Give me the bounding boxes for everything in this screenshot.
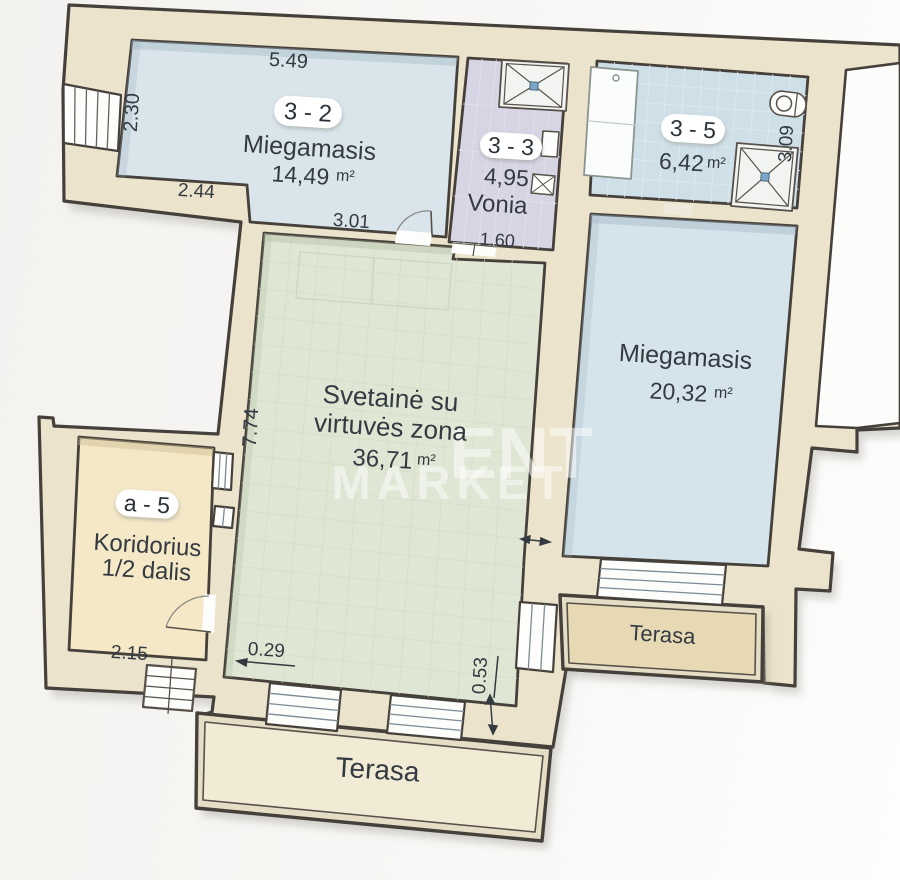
svg-text:3 - 2: 3 - 2	[283, 98, 333, 128]
svg-text:1.60: 1.60	[479, 229, 515, 251]
svg-text:0.29: 0.29	[247, 639, 285, 662]
svg-text:m²: m²	[416, 451, 436, 469]
svg-text:5.49: 5.49	[268, 49, 308, 73]
svg-text:4,95: 4,95	[483, 163, 529, 192]
svg-text:2.30: 2.30	[120, 93, 144, 133]
svg-text:7.74: 7.74	[239, 408, 263, 448]
svg-text:Vonia: Vonia	[467, 189, 529, 220]
svg-text:m²: m²	[335, 167, 355, 185]
svg-text:3.01: 3.01	[332, 210, 370, 233]
svg-text:6,42: 6,42	[658, 148, 704, 177]
svg-text:14,49: 14,49	[271, 160, 330, 190]
svg-text:m²: m²	[713, 384, 733, 402]
svg-text:Terasa: Terasa	[629, 620, 697, 649]
svg-text:3 - 3: 3 - 3	[487, 132, 535, 161]
svg-text:Terasa: Terasa	[335, 751, 421, 787]
svg-text:m²: m²	[706, 154, 726, 172]
svg-text:a - 5: a - 5	[123, 490, 171, 519]
svg-text:3 - 5: 3 - 5	[669, 115, 717, 144]
svg-text:20,32: 20,32	[649, 377, 708, 407]
svg-text:2.15: 2.15	[110, 642, 148, 665]
svg-text:2.44: 2.44	[177, 180, 216, 203]
svg-text:1/2 dalis: 1/2 dalis	[101, 554, 192, 587]
svg-text:36,71: 36,71	[352, 444, 414, 475]
svg-text:3.09: 3.09	[775, 125, 798, 163]
svg-text:0.53: 0.53	[469, 657, 492, 695]
